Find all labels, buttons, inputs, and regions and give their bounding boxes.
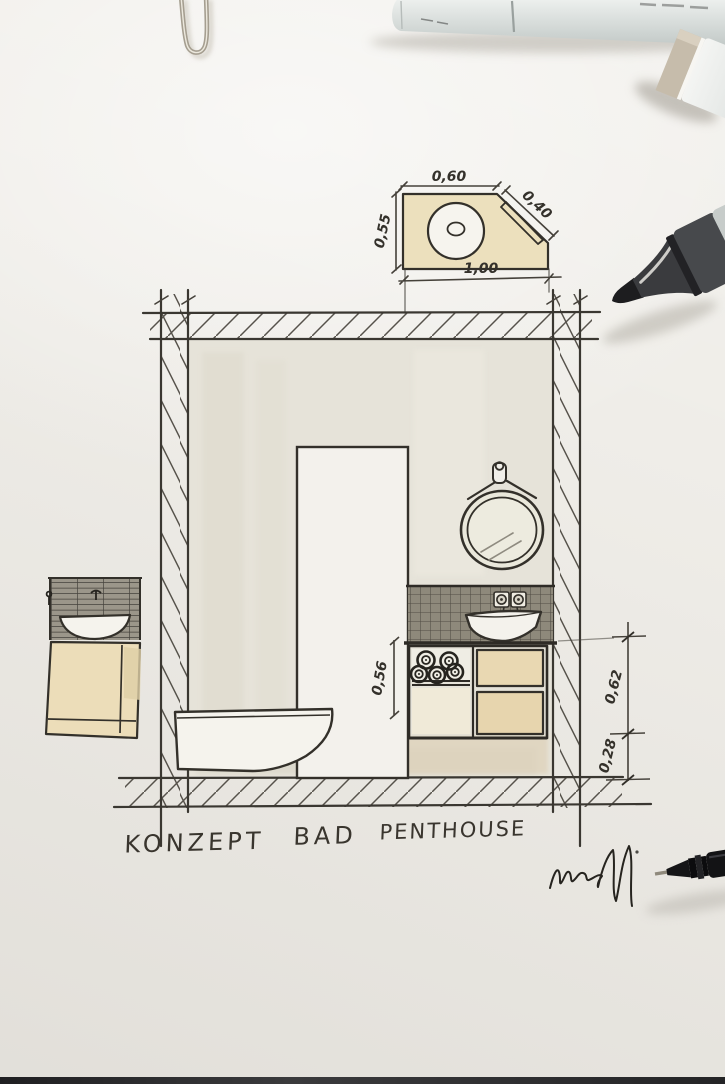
paperclip: [181, 0, 211, 57]
table-edge: [0, 1077, 725, 1084]
dim-detail-left: 0,55: [372, 212, 395, 249]
dim-detail-diag: 0,40: [519, 187, 555, 222]
caption-word-3: PENTHOUSE: [379, 815, 527, 844]
ink-speck: [635, 850, 638, 853]
vanity-cabinet: [409, 646, 547, 738]
wall-top-hatch: [150, 313, 592, 339]
dim-detail-bottom: 1,00: [464, 261, 499, 277]
caption-word-2: BAD: [293, 821, 357, 851]
black-marker: [596, 181, 725, 351]
dim-vanity-upper: 0,62: [602, 668, 626, 705]
caption: KONZEPT BAD PENTHOUSE: [123, 815, 528, 858]
photo-of-sketch: 0,60 0,55 0,40 1,00: [0, 0, 725, 1084]
wall-bottom-hatch: [125, 778, 622, 807]
detail-plan-counter: 0,60 0,55 0,40 1,00: [372, 169, 561, 313]
caption-word-1: KONZEPT: [124, 827, 265, 859]
detail-basin-circle: [428, 203, 484, 259]
dim-detail-top: 0,60: [432, 169, 467, 185]
wall-tick-marks: [155, 296, 587, 304]
open-niche: [412, 688, 470, 734]
wall-right-hatch: [553, 294, 580, 808]
sketch-canvas: 0,60 0,55 0,40 1,00: [0, 0, 725, 1084]
drawer-upper: [477, 650, 543, 686]
side-view-vanity: [46, 578, 142, 738]
drawer-lower: [477, 692, 543, 734]
gray-marker: [370, 0, 725, 53]
fineliner-pen: [635, 833, 725, 919]
dim-vanity-lower: 0,28: [596, 737, 620, 775]
signature: [550, 846, 632, 906]
